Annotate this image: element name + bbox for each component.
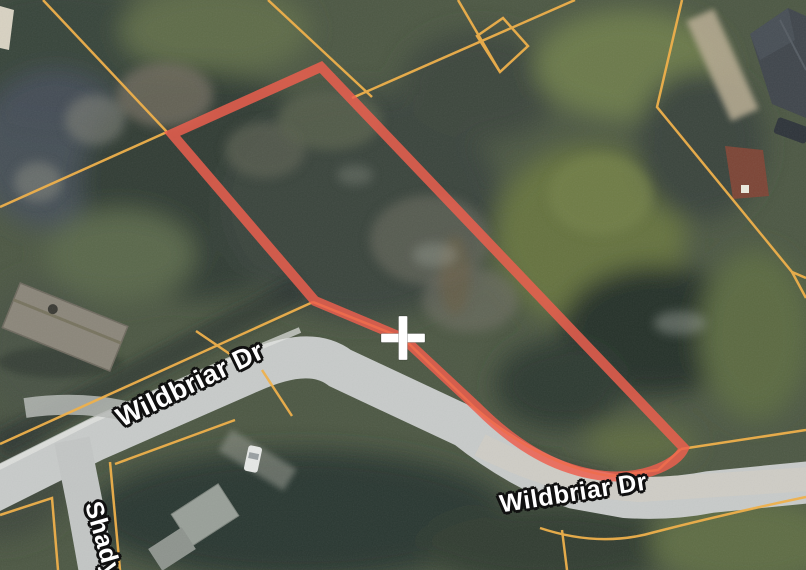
- photo-grain: [0, 0, 806, 570]
- satellite-map-view[interactable]: Wildbriar Dr Wildbriar Dr Shady: [0, 0, 806, 570]
- satellite-imagery: [0, 0, 806, 570]
